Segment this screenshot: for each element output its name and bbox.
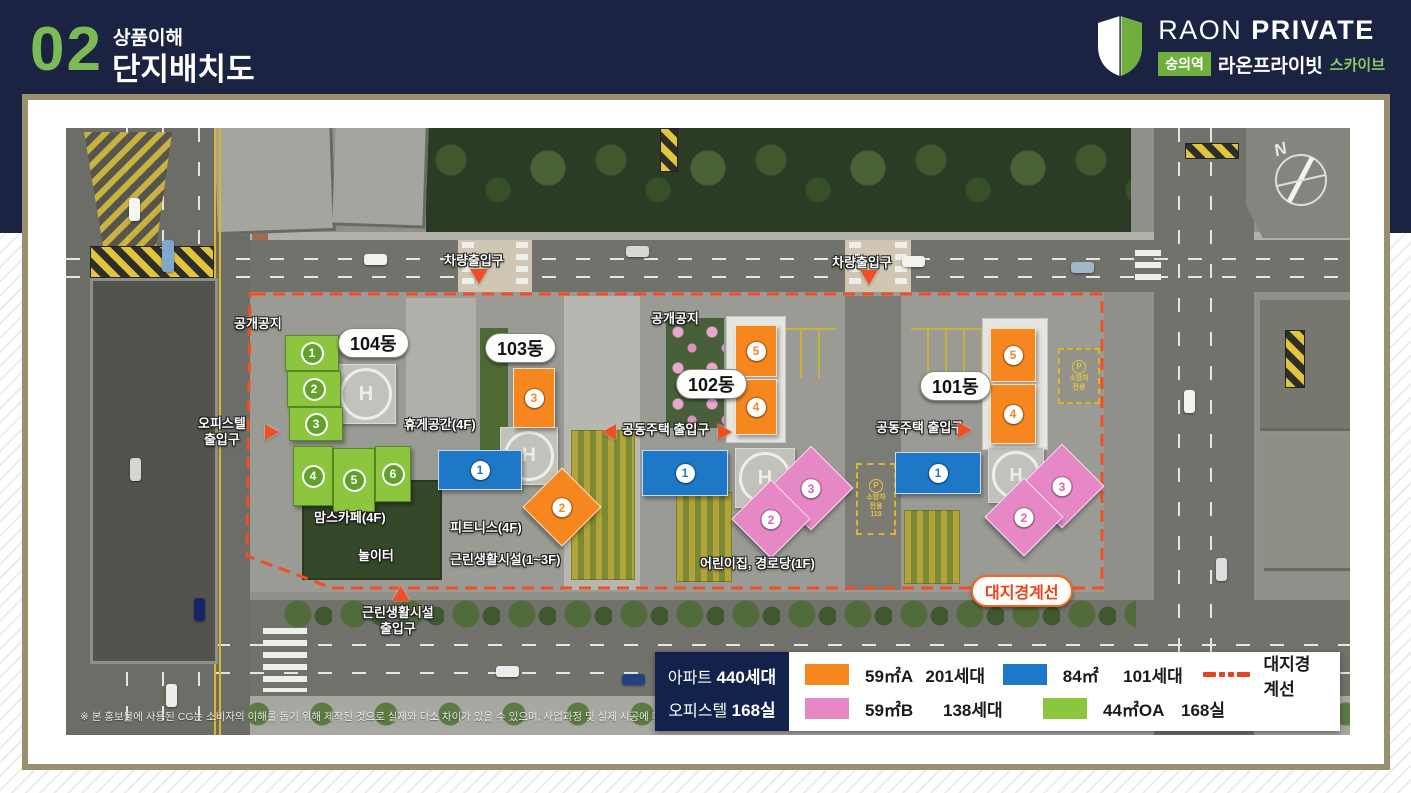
page-title: 단지배치도 [112, 44, 255, 89]
fire-lane-label: 소방차 [1069, 375, 1088, 383]
bldg-102-unit-5: 5 [735, 325, 777, 377]
compass: N [1271, 132, 1331, 215]
bldg-104-unit-4: 4 [293, 446, 333, 506]
legend: 아파트 440세대 오피스텔 168실 59㎡A 201세대 84㎡ 101세대 [655, 652, 1340, 731]
fire-lane-label: 소방차 [866, 494, 885, 502]
label-neighborhood-facility: 근린생활시설(1~3F) [450, 552, 560, 568]
brand-name-en: RAON PRIVATE [1158, 15, 1375, 46]
legend-items: 59㎡A 201세대 84㎡ 101세대 대지경계선 59㎡B 138세대 [789, 652, 1340, 731]
entrance-arrow-icon [265, 424, 279, 440]
entrance-arrow-icon [392, 586, 410, 601]
offsite-building [214, 128, 336, 235]
legend-summary: 아파트 440세대 오피스텔 168실 [655, 652, 789, 731]
offsite-building [1260, 300, 1350, 431]
swatch-59b [805, 698, 849, 719]
badge-bldg-103: 103동 [485, 333, 556, 363]
swatch-44oa [1043, 698, 1087, 719]
badge-bldg-101: 101동 [920, 371, 991, 401]
badge-bldg-102: 102동 [676, 369, 747, 399]
entrance-arrow-icon [470, 269, 488, 284]
label-daycare-senior: 어린이집, 경로당(1F) [700, 556, 815, 572]
legend-type: 84㎡ [1063, 662, 1123, 687]
inner-driveway [845, 296, 901, 590]
legend-count: 138세대 [943, 696, 1043, 721]
label-vehicle-entrance: 차량출입구 [444, 253, 504, 269]
bldg-104-unit-6: 6 [375, 446, 411, 502]
label-playground: 놀이터 [358, 548, 394, 564]
brand-word-raon: RAON [1158, 15, 1242, 45]
bldg-103-unit-1: 1 [438, 450, 522, 490]
bldg-104-unit-3: 3 [289, 407, 343, 441]
label-moms-cafe: 맘스카페(4F) [314, 510, 386, 526]
label-vehicle-entrance: 차량출입구 [832, 255, 892, 271]
bldg-103-unit-3: 3 [513, 368, 555, 428]
bldg-101-unit-1: 1 [895, 452, 981, 494]
legend-count: 101세대 [1123, 662, 1200, 687]
site-boundary-badge: 대지경계선 [971, 575, 1073, 607]
entrance-arrow-icon [718, 424, 732, 440]
slide-number: 02 [30, 14, 103, 85]
legend-type: 44㎡OA [1103, 696, 1181, 721]
label-apartment-entrance: 공동주택 출입구 [876, 420, 963, 436]
brand-suffix: 스카이브 [1330, 54, 1385, 75]
summary-officetel: 오피스텔 168실 [663, 696, 781, 721]
label-officetel-entrance: 오피스텔 출입구 [198, 416, 246, 447]
badge-bldg-104: 104동 [338, 328, 409, 358]
legend-boundary-label: 대지경계선 [1264, 650, 1325, 700]
parking-icon: P [869, 479, 883, 493]
swatch-59a [805, 664, 849, 685]
label-open-space: 공개공지 [234, 316, 282, 332]
legend-type: 59㎡B [865, 696, 943, 721]
legend-type: 59㎡A [865, 662, 925, 687]
entrance-arrow-icon [602, 424, 616, 440]
label-rest-area: 휴게공간(4F) [404, 417, 476, 433]
label-neighborhood-entrance: 근린생활시설 출입구 [362, 605, 434, 636]
entrance-arrow-icon [860, 270, 878, 285]
fire-lane-label: 전용 [870, 503, 883, 511]
station-badge: 숭의역 [1158, 52, 1211, 76]
legend-count: 201세대 [925, 662, 1002, 687]
brand-logo: RAON PRIVATE 숭의역 라온프라이빗 스카이브 [1094, 14, 1385, 78]
label-open-space: 공개공지 [651, 311, 699, 327]
bldg-104-unit-1: 1 [285, 335, 339, 371]
boundary-line-icon [1203, 672, 1250, 677]
site-plan-map: P 소방차 전용 119 P 소방차 전용 H H H H 1 [66, 128, 1350, 735]
bldg-102-unit-1: 1 [642, 450, 728, 496]
fire-lane-zone: P 소방차 전용 [1058, 348, 1100, 404]
fire-lane-zone: P 소방차 전용 119 [856, 463, 896, 535]
bldg-104-unit-2: 2 [287, 371, 341, 407]
fire-lane-label: 전용 [1073, 384, 1086, 392]
content-card: P 소방차 전용 119 P 소방차 전용 H H H H 1 [22, 94, 1390, 770]
brand-word-private: PRIVATE [1251, 15, 1375, 45]
shield-logo-icon [1094, 14, 1146, 78]
parking-icon: P [1072, 360, 1086, 374]
bldg-104-unit-5: 5 [333, 448, 375, 512]
bldg-101-unit-4: 4 [990, 384, 1036, 444]
entrance-arrow-icon [958, 422, 972, 438]
bldg-101-unit-5: 5 [990, 328, 1036, 382]
fire-lane-label: 119 [870, 511, 881, 519]
offsite-building [332, 128, 429, 229]
brand-name-kr: 라온프라이빗 [1218, 51, 1323, 78]
label-apartment-entrance: 공동주택 출입구 [622, 422, 709, 438]
compass-rose-icon [1271, 152, 1331, 210]
helipad-104: H [336, 364, 396, 424]
swatch-84 [1003, 664, 1047, 685]
forest-band [426, 128, 1131, 232]
label-fitness: 피트니스(4F) [450, 520, 522, 536]
legend-count: 168실 [1181, 696, 1281, 721]
offsite-building [1264, 436, 1350, 571]
summary-apartment: 아파트 440세대 [663, 663, 781, 688]
